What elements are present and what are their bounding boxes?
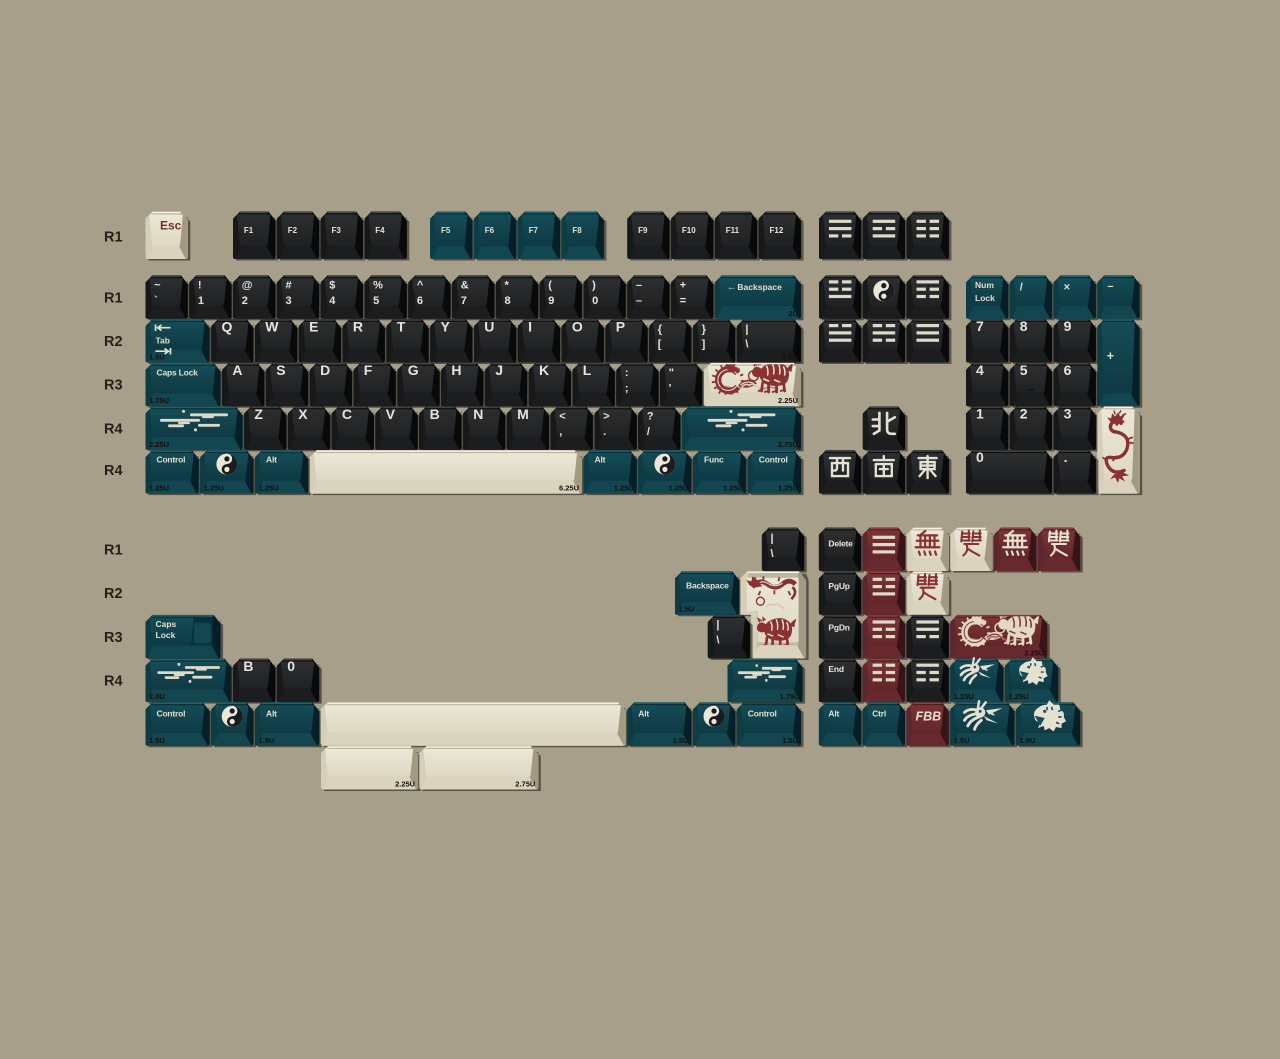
svg-text:Control: Control bbox=[157, 708, 186, 718]
svg-text:6.25U: 6.25U bbox=[559, 484, 579, 493]
svg-text:|: | bbox=[716, 619, 719, 631]
svg-text:7: 7 bbox=[461, 295, 467, 307]
svg-text:,: , bbox=[559, 426, 562, 438]
svg-text:.: . bbox=[1064, 449, 1068, 465]
svg-text:H: H bbox=[451, 362, 461, 378]
svg-text:9: 9 bbox=[548, 295, 554, 307]
svg-text:PgDn: PgDn bbox=[828, 622, 849, 632]
svg-text:0: 0 bbox=[592, 295, 598, 307]
svg-text:1.5U: 1.5U bbox=[679, 605, 695, 614]
svg-text:Backspace: Backspace bbox=[686, 581, 729, 591]
svg-text:$: $ bbox=[329, 280, 335, 292]
svg-text:1.25U: 1.25U bbox=[1009, 692, 1029, 701]
svg-text:Alt: Alt bbox=[266, 455, 277, 465]
svg-text:1: 1 bbox=[198, 295, 204, 307]
svg-text:←: ← bbox=[727, 282, 737, 293]
svg-text:Num: Num bbox=[975, 280, 994, 290]
svg-text:R4: R4 bbox=[104, 463, 123, 479]
svg-text:F8: F8 bbox=[572, 226, 582, 235]
svg-text:2.75U: 2.75U bbox=[515, 780, 535, 789]
svg-text:G: G bbox=[408, 362, 419, 378]
svg-text:0: 0 bbox=[287, 658, 295, 674]
svg-text:/: / bbox=[1020, 281, 1023, 293]
svg-text:(: ( bbox=[548, 280, 552, 292]
svg-text:R2: R2 bbox=[104, 334, 123, 350]
svg-text:1.5U: 1.5U bbox=[149, 353, 165, 362]
svg-text:Caps: Caps bbox=[156, 619, 177, 629]
svg-text:4: 4 bbox=[329, 295, 336, 307]
svg-text:M: M bbox=[517, 406, 529, 422]
svg-text:N: N bbox=[473, 406, 483, 422]
svg-text:F3: F3 bbox=[332, 226, 342, 235]
svg-text:V: V bbox=[386, 406, 396, 422]
svg-text:0: 0 bbox=[976, 449, 984, 465]
svg-text:Alt: Alt bbox=[266, 708, 277, 718]
svg-text:1.25U: 1.25U bbox=[259, 484, 279, 493]
svg-text:R1: R1 bbox=[104, 230, 123, 246]
svg-text:R4: R4 bbox=[104, 674, 123, 690]
svg-text:3: 3 bbox=[286, 295, 292, 307]
svg-text:R1: R1 bbox=[104, 543, 123, 559]
svg-text:2: 2 bbox=[242, 295, 248, 307]
svg-text:1.25U: 1.25U bbox=[954, 692, 974, 701]
svg-text:Esc: Esc bbox=[160, 219, 182, 233]
svg-text:U: U bbox=[484, 318, 494, 334]
svg-text:B: B bbox=[243, 658, 253, 674]
svg-text:?: ? bbox=[647, 411, 654, 423]
svg-text:Alt: Alt bbox=[828, 708, 839, 718]
svg-text:1.25U: 1.25U bbox=[614, 484, 634, 493]
svg-text:J: J bbox=[495, 362, 503, 378]
svg-text:9: 9 bbox=[1064, 318, 1072, 334]
svg-text:3: 3 bbox=[1064, 406, 1072, 422]
svg-text:1.75U: 1.75U bbox=[149, 396, 169, 405]
svg-text:*: * bbox=[505, 280, 510, 292]
svg-text:A: A bbox=[232, 362, 242, 378]
svg-text:): ) bbox=[592, 280, 596, 292]
svg-text:R3: R3 bbox=[104, 630, 123, 646]
svg-text:|: | bbox=[745, 323, 748, 335]
svg-text:–: – bbox=[636, 280, 642, 292]
svg-text:B: B bbox=[430, 406, 440, 422]
svg-text:#: # bbox=[286, 280, 292, 292]
svg-text:8: 8 bbox=[1020, 318, 1028, 334]
svg-text:8: 8 bbox=[505, 295, 511, 307]
svg-text:1.5U: 1.5U bbox=[782, 736, 798, 745]
svg-text:I: I bbox=[528, 318, 532, 334]
svg-text:–: – bbox=[1107, 280, 1113, 292]
svg-text:+: + bbox=[680, 280, 686, 292]
svg-text:1.75U: 1.75U bbox=[780, 692, 800, 701]
svg-text:–: – bbox=[636, 295, 642, 307]
svg-text:5: 5 bbox=[1020, 362, 1028, 378]
svg-text:X: X bbox=[298, 406, 308, 422]
svg-text:1.25U: 1.25U bbox=[149, 484, 169, 493]
svg-text:1.5U: 1.5U bbox=[782, 353, 798, 362]
svg-text:": " bbox=[669, 367, 674, 379]
svg-text:\: \ bbox=[771, 548, 774, 560]
svg-text:{: { bbox=[658, 323, 663, 335]
svg-text:2U: 2U bbox=[788, 309, 798, 318]
svg-text:2.25U: 2.25U bbox=[395, 780, 415, 789]
svg-text:F6: F6 bbox=[485, 226, 495, 235]
svg-text:F: F bbox=[364, 362, 373, 378]
svg-text:F4: F4 bbox=[375, 226, 385, 235]
svg-text:^: ^ bbox=[417, 280, 424, 292]
svg-text:': ' bbox=[669, 382, 672, 394]
svg-text:1.25U: 1.25U bbox=[668, 484, 688, 493]
svg-text:\: \ bbox=[745, 339, 748, 351]
svg-text:1: 1 bbox=[976, 406, 984, 422]
svg-text:F5: F5 bbox=[441, 226, 451, 235]
svg-text:2: 2 bbox=[1020, 406, 1028, 422]
svg-text:1.5U: 1.5U bbox=[954, 736, 970, 745]
svg-text:Q: Q bbox=[222, 318, 233, 334]
svg-text:Alt: Alt bbox=[595, 455, 606, 465]
svg-text:Control: Control bbox=[157, 455, 186, 465]
svg-text:\: \ bbox=[716, 635, 719, 647]
svg-text:2.25U: 2.25U bbox=[778, 396, 798, 405]
svg-text:%: % bbox=[373, 280, 383, 292]
svg-text:FBB: FBB bbox=[916, 709, 942, 723]
svg-text:;: ; bbox=[625, 382, 629, 394]
svg-text:F11: F11 bbox=[726, 226, 740, 235]
svg-text:2.25U: 2.25U bbox=[1024, 648, 1044, 657]
svg-text:F1: F1 bbox=[244, 226, 254, 235]
svg-text:End: End bbox=[828, 664, 843, 674]
svg-text:6: 6 bbox=[1064, 362, 1072, 378]
svg-text:Control: Control bbox=[759, 455, 788, 465]
svg-text:K: K bbox=[539, 362, 549, 378]
svg-text:1.25U: 1.25U bbox=[204, 484, 224, 493]
svg-text:R2: R2 bbox=[104, 586, 123, 602]
svg-text:F12: F12 bbox=[770, 226, 784, 235]
svg-text:2.0U: 2.0U bbox=[149, 692, 165, 701]
svg-text:Tab: Tab bbox=[156, 336, 170, 346]
svg-text:Delete: Delete bbox=[828, 539, 853, 549]
svg-text:1.5U: 1.5U bbox=[673, 736, 689, 745]
svg-text:R4: R4 bbox=[104, 421, 123, 437]
svg-text:D: D bbox=[320, 362, 330, 378]
svg-text:W: W bbox=[265, 318, 279, 334]
svg-text:Backspace: Backspace bbox=[737, 282, 782, 292]
svg-text:Alt: Alt bbox=[638, 708, 649, 718]
svg-text:PgUp: PgUp bbox=[828, 581, 849, 591]
svg-text:!: ! bbox=[198, 280, 202, 292]
svg-text:=: = bbox=[680, 295, 686, 307]
svg-text:1.25U: 1.25U bbox=[778, 484, 798, 493]
svg-text:1.5U: 1.5U bbox=[149, 736, 165, 745]
svg-text:1.5U: 1.5U bbox=[1020, 736, 1036, 745]
svg-text:F10: F10 bbox=[682, 226, 696, 235]
svg-text:@: @ bbox=[242, 280, 253, 292]
svg-text:S: S bbox=[276, 362, 285, 378]
svg-text:Z: Z bbox=[254, 406, 263, 422]
svg-text:}: } bbox=[702, 323, 707, 335]
svg-text:6: 6 bbox=[417, 295, 423, 307]
svg-text:T: T bbox=[397, 318, 406, 334]
svg-text:R3: R3 bbox=[104, 378, 123, 394]
svg-text:7: 7 bbox=[976, 318, 984, 334]
svg-text:&: & bbox=[461, 280, 469, 292]
svg-text:2.25U: 2.25U bbox=[149, 440, 169, 449]
svg-text:Lock: Lock bbox=[975, 293, 995, 303]
svg-text:×: × bbox=[1064, 281, 1070, 293]
svg-text:2.75U: 2.75U bbox=[778, 440, 798, 449]
svg-text:Lock: Lock bbox=[156, 630, 176, 640]
svg-text:>: > bbox=[603, 411, 609, 423]
svg-text:+: + bbox=[1107, 349, 1114, 363]
svg-text:R1: R1 bbox=[104, 290, 123, 306]
svg-text:[: [ bbox=[658, 339, 662, 351]
svg-text:F7: F7 bbox=[529, 226, 539, 235]
svg-text:P: P bbox=[616, 318, 625, 334]
svg-text:`: ` bbox=[154, 295, 158, 307]
svg-text:R: R bbox=[353, 318, 363, 334]
svg-text:F9: F9 bbox=[638, 226, 648, 235]
svg-text:C: C bbox=[342, 406, 352, 422]
svg-text:Caps Lock: Caps Lock bbox=[157, 367, 199, 377]
svg-text:]: ] bbox=[702, 339, 706, 351]
svg-text:1.25U: 1.25U bbox=[723, 484, 743, 493]
svg-text:Func: Func bbox=[704, 455, 724, 465]
svg-text:<: < bbox=[559, 411, 565, 423]
svg-text::: : bbox=[625, 367, 629, 379]
svg-text:Ctrl: Ctrl bbox=[872, 708, 886, 718]
svg-text:O: O bbox=[572, 318, 583, 334]
svg-text:Y: Y bbox=[441, 318, 451, 334]
svg-text:F2: F2 bbox=[288, 226, 298, 235]
svg-text:5: 5 bbox=[373, 295, 379, 307]
svg-text:/: / bbox=[647, 426, 650, 438]
svg-text:E: E bbox=[309, 318, 318, 334]
svg-text:.: . bbox=[603, 426, 606, 438]
svg-text:Control: Control bbox=[748, 708, 777, 718]
svg-text:1.5U: 1.5U bbox=[259, 736, 275, 745]
svg-text:4: 4 bbox=[976, 362, 984, 378]
svg-text:|: | bbox=[771, 533, 774, 545]
svg-text:~: ~ bbox=[154, 280, 161, 292]
svg-text:L: L bbox=[583, 362, 592, 378]
